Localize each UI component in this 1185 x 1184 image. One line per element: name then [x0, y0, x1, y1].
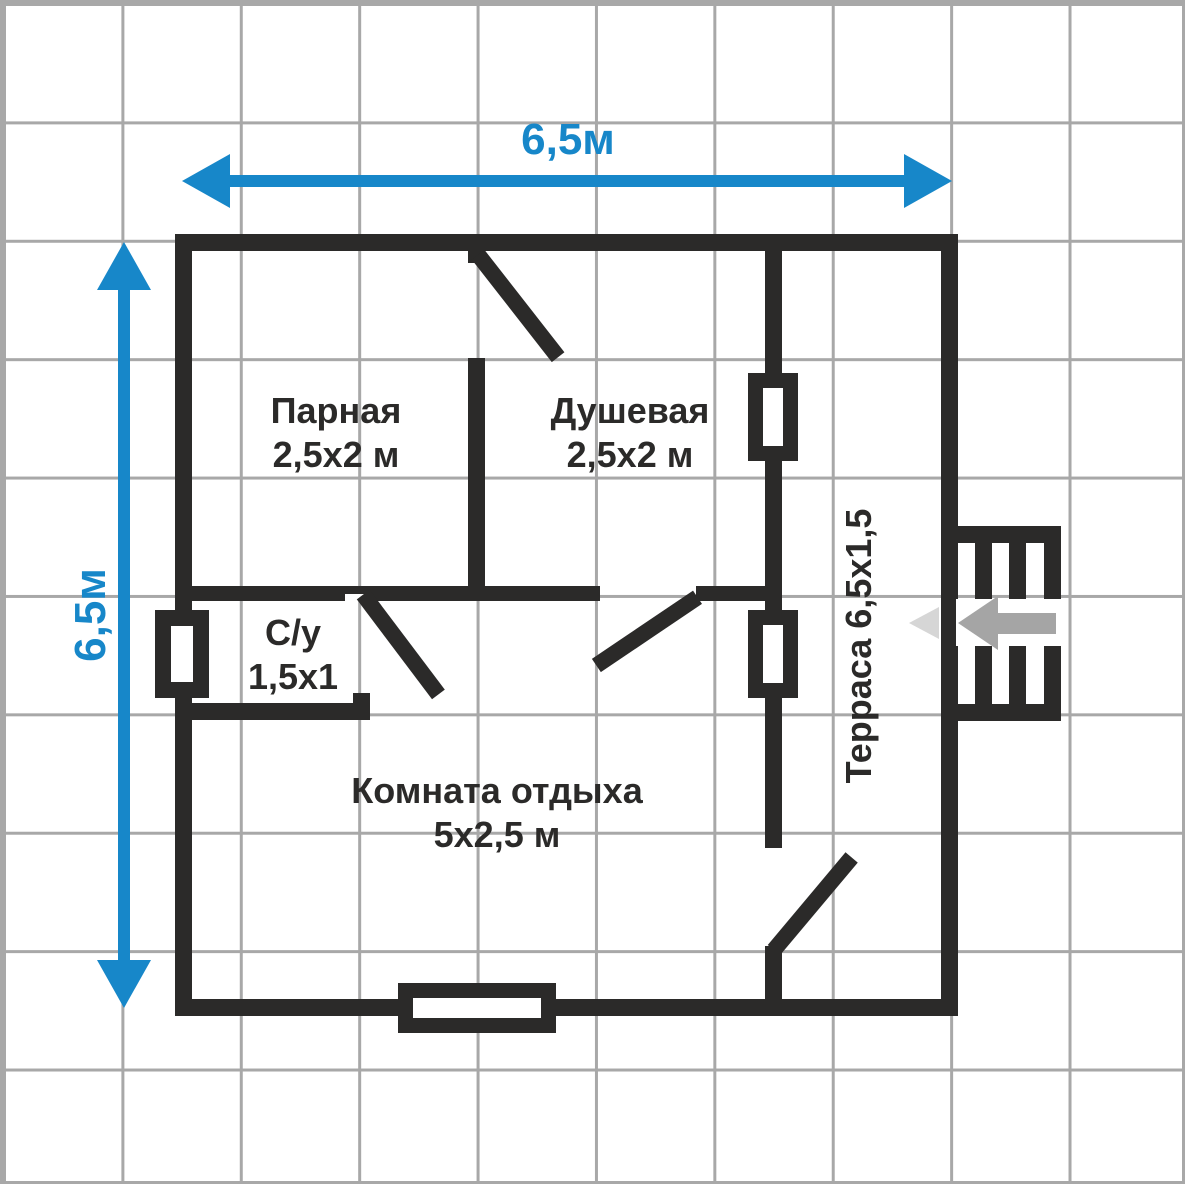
room-label-steamroom: Парная 2,5х2 м [271, 389, 402, 477]
top-dimension-arrowhead-left-icon [182, 154, 230, 208]
terrace-door-leaf-icon [768, 852, 858, 955]
bathroom-name: С/у [248, 611, 338, 655]
left-dimension-line [118, 288, 130, 962]
loungeroom-door-leaf-icon [592, 591, 702, 672]
terrace-wall-upper [765, 251, 782, 848]
shower-size: 2,5х2 м [551, 433, 710, 477]
corridor-wall-left [192, 586, 600, 601]
entrance-arrow-head-icon [958, 596, 998, 650]
steamroom-size: 2,5х2 м [271, 433, 402, 477]
left-dimension-arrowhead-bottom-icon [97, 960, 151, 1008]
shower-door-leaf-icon [472, 250, 565, 362]
window-terrace-wall-lower-icon [748, 610, 798, 698]
bathroom-wall-stub [353, 693, 370, 720]
window-terrace-wall-upper-icon [748, 373, 798, 461]
bathroom-door-leaf-icon [357, 590, 445, 699]
room-label-bathroom: С/у 1,5х1 [248, 611, 338, 699]
shower-name: Душевая [551, 389, 710, 433]
bathroom-size: 1,5х1 [248, 655, 338, 699]
window-left-wall-icon [155, 610, 209, 698]
loungeroom-name: Комната отдыха [351, 769, 642, 813]
outer-wall-top [175, 234, 958, 251]
steamroom-shower-wall [468, 358, 485, 601]
steamroom-name: Парная [271, 389, 402, 433]
corridor-wall-right [696, 586, 765, 601]
room-label-shower: Душевая 2,5х2 м [551, 389, 710, 477]
loungeroom-size: 5х2,5 м [351, 813, 642, 857]
left-dimension-arrowhead-top-icon [97, 242, 151, 290]
bathroom-wall-bottom [192, 703, 370, 720]
room-label-terrace: Терраса 6,5х1,5 [837, 509, 881, 784]
floor-plan: 6,5м 6,5м Парная 2,5х2 м Душевая 2,5х2 м [0, 0, 1185, 1184]
window-bottom-wall-icon [398, 983, 556, 1033]
top-dimension-label: 6,5м [521, 115, 615, 165]
room-label-loungeroom: Комната отдыха 5х2,5 м [351, 769, 642, 857]
entrance-arrow-faint-tip-icon [909, 607, 939, 639]
left-dimension-label: 6,5м [66, 568, 116, 662]
top-dimension-arrowhead-right-icon [904, 154, 952, 208]
outer-wall-bottom [175, 999, 958, 1016]
top-dimension-line [228, 175, 908, 187]
entrance-arrow-body [996, 613, 1056, 634]
